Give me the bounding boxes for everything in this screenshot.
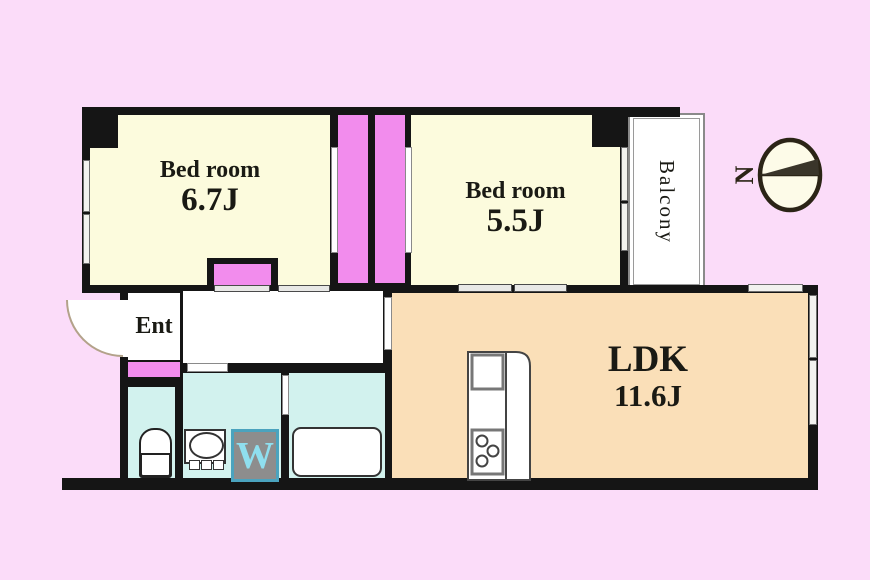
window [621,203,628,251]
washing-machine-icon: W [231,429,279,482]
bedroom1-label-group: Bed room 6.7J [90,148,330,228]
sink-foot [201,460,212,470]
sliding-door [458,284,512,292]
ldk-label-group: LDK 11.6J [548,332,748,422]
bedroom2-label-group: Bed room 5.5J [411,168,620,250]
entrance-label: Ent [128,293,180,360]
sliding-door [278,285,330,292]
ldk-name: LDK [608,341,688,380]
compass-icon: N [733,134,833,219]
sliding-door [214,285,270,292]
balcony-label: Balcony [654,160,679,244]
shoe-closet [128,362,180,377]
pillar-bedroom2 [592,115,620,147]
closet-left [338,115,368,283]
closet-bump [214,264,271,285]
bathtub-icon [292,427,382,477]
window [748,284,803,292]
toilet-base [140,453,171,477]
sink-foot [189,460,200,470]
window [809,295,817,358]
wall-bottom [62,478,818,490]
ldk-door [384,297,392,350]
washroom-door [187,363,228,372]
kitchen-counter-icon [466,350,532,482]
closet-right [375,115,405,283]
window [83,160,90,212]
ldk-size: 11.6J [614,380,682,413]
bedroom2-name: Bed room [465,179,565,204]
window [621,147,628,201]
bedroom1-name: Bed room [160,158,260,183]
floor-plan: Balcony W [0,0,870,580]
bedroom1-size: 6.7J [181,183,239,218]
window [83,214,90,264]
wall-top-extension [628,107,680,117]
north-label: N [733,165,759,184]
entrance-door-arc-icon [66,300,123,357]
bedroom2-size: 5.5J [487,204,545,239]
balcony-area: Balcony [628,113,705,290]
washing-machine-letter: W [236,434,274,478]
toilet-icon [139,428,172,478]
bathroom-door [282,375,289,415]
sink-bowl [189,432,224,459]
window [809,360,817,425]
sink-icon [184,429,226,464]
closet-sliding-door [331,147,338,253]
pillar-bedroom1 [90,115,118,148]
hallway [183,291,383,363]
sink-foot [213,460,224,470]
sliding-door [514,284,567,292]
balcony-inner-rail: Balcony [633,118,700,285]
